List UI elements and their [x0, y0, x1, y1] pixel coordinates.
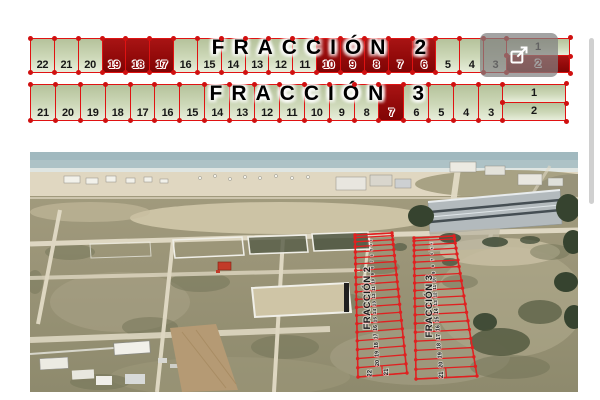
lot-number: 19	[87, 108, 99, 120]
photo-lot-number: 15	[435, 317, 441, 323]
vertex-dot	[568, 35, 573, 40]
lot-number: 17	[156, 60, 168, 72]
lot-number: 18	[112, 108, 124, 120]
lot-16: 16	[173, 38, 198, 73]
lot-number: 10	[311, 108, 323, 120]
lot-9-sold: 9	[340, 38, 365, 73]
photo-lot-number: 19	[438, 352, 444, 358]
lot-number: 11	[299, 60, 310, 72]
lot-number: 9	[349, 60, 355, 72]
lot-1: 1	[502, 84, 566, 103]
lot-number: 16	[180, 60, 192, 72]
photo-lot-number: 19	[375, 351, 381, 357]
scrollbar-thumb[interactable]	[589, 38, 594, 204]
photo-lot-number: 18	[437, 343, 443, 349]
lot-12: 12	[254, 84, 280, 121]
lot-17: 17	[130, 84, 156, 121]
lot-number: 6	[421, 60, 427, 72]
lot-number: 16	[162, 108, 174, 120]
lot-number: 11	[286, 108, 297, 120]
lot-number: 20	[84, 60, 96, 72]
lot-number: 4	[463, 108, 469, 120]
lot-number: 18	[132, 60, 144, 72]
lot-9: 9	[329, 84, 355, 121]
corner-lots: 12	[503, 84, 566, 121]
photo-lot-number: 22	[368, 369, 374, 376]
lot-number: 5	[438, 108, 444, 120]
lot-number: 15	[204, 60, 216, 72]
lot-number: 21	[60, 60, 72, 72]
lot-number: 12	[275, 60, 287, 72]
photo-lot-number: 15	[373, 317, 379, 323]
lot-number: 19	[108, 60, 120, 72]
photo-lot-number: 7	[370, 260, 374, 262]
lot-6-sold: 6	[412, 38, 437, 73]
lot-number: 2	[531, 106, 537, 117]
lot-number: 7	[389, 108, 395, 120]
photo-lot-number: 5	[369, 249, 373, 251]
lot-13: 13	[229, 84, 255, 121]
lot-14: 14	[204, 84, 230, 121]
photo-lot-number: 17	[436, 334, 442, 340]
lot-number: 17	[137, 108, 149, 120]
photo-strip-label: FRACCIÓN 3	[423, 274, 435, 337]
lot-4: 4	[453, 84, 479, 121]
photo-lot-number: 20	[375, 360, 381, 366]
lot-19-sold: 19	[102, 38, 127, 73]
open-fullscreen-icon	[509, 45, 529, 65]
lot-number: 13	[251, 60, 263, 72]
lot-number: 8	[364, 108, 370, 120]
lot-number: 10	[323, 60, 335, 72]
lot-22: 22	[30, 38, 55, 73]
photo-lot-number: 16	[435, 325, 441, 331]
photo-lot-number: 21	[384, 368, 390, 375]
lot-11: 11	[292, 38, 317, 73]
lot-2: 2	[502, 102, 566, 121]
photo-lot-number: 6	[430, 253, 434, 255]
lot-18: 18	[105, 84, 131, 121]
lot-number: 20	[62, 108, 74, 120]
lot-number: 14	[227, 60, 239, 72]
lot-number: 21	[37, 108, 49, 120]
photo-lot-number: 6	[370, 254, 374, 256]
aerial-photo[interactable]: 222120191817161514131211109876543FRACCIÓ…	[30, 152, 578, 392]
lot-number: 3	[488, 108, 494, 120]
lot-number: 12	[261, 108, 273, 120]
lot-20: 20	[55, 84, 81, 121]
vertex-dot	[564, 119, 569, 124]
photo-lot-number: 21	[439, 371, 445, 378]
lot-8: 8	[354, 84, 380, 121]
lot-8-sold: 8	[364, 38, 389, 73]
lot-21: 21	[30, 84, 56, 121]
lot-number: 8	[373, 60, 379, 72]
photo-lot-number: 14	[372, 309, 378, 315]
photo-lot-number: 7	[431, 259, 435, 261]
lot-number: 4	[469, 60, 475, 72]
lot-10-sold: 10	[316, 38, 341, 73]
lot-17-sold: 17	[149, 38, 174, 73]
lot-11: 11	[279, 84, 305, 121]
lot-13: 13	[245, 38, 270, 73]
lot-19: 19	[80, 84, 106, 121]
fraccion-3-lots: 212019181716151413121110987654312	[30, 84, 566, 121]
vertex-dot	[568, 54, 573, 59]
lot-number: 9	[339, 108, 345, 120]
vertex-dot	[564, 101, 569, 106]
lot-7-sold: 7	[388, 38, 413, 73]
lot-15: 15	[197, 38, 222, 73]
lot-number: 6	[413, 108, 419, 120]
lot-10: 10	[304, 84, 330, 121]
lot-15: 15	[179, 84, 205, 121]
lot-7-sold: 7	[378, 84, 404, 121]
vertex-dot	[564, 81, 569, 86]
lot-number: 1	[531, 88, 537, 99]
lot-20: 20	[78, 38, 103, 73]
lot-12: 12	[268, 38, 293, 73]
lot-number: 5	[445, 60, 451, 72]
expand-button[interactable]	[480, 33, 558, 77]
vertex-dot	[568, 71, 573, 76]
lot-18-sold: 18	[125, 38, 150, 73]
lot-5: 5	[428, 84, 454, 121]
lot-number: 14	[211, 108, 223, 120]
photo-lot-number: 20	[438, 362, 444, 368]
photo-lot-number: 16	[373, 325, 379, 331]
lot-number: 22	[37, 60, 49, 72]
photo-lot-number: 17	[374, 333, 380, 339]
photo-lot-number: 18	[374, 342, 380, 348]
fraccion-3-plan-strip[interactable]: 212019181716151413121110987654312 FRACCI…	[30, 84, 566, 121]
lot-number: 7	[397, 60, 403, 72]
lot-6: 6	[403, 84, 429, 121]
lot-16: 16	[154, 84, 180, 121]
lot-number: 13	[236, 108, 248, 120]
listing-lot-plan-page: 22212019181716151413121110987654312 FRAC…	[0, 0, 600, 400]
lot-21: 21	[54, 38, 79, 73]
photo-strip-label: FRACCIÓN 2	[361, 266, 373, 329]
photo-lot-number: 5	[430, 247, 434, 249]
lot-number: 15	[186, 108, 198, 120]
lot-5: 5	[435, 38, 460, 73]
lot-14: 14	[221, 38, 246, 73]
